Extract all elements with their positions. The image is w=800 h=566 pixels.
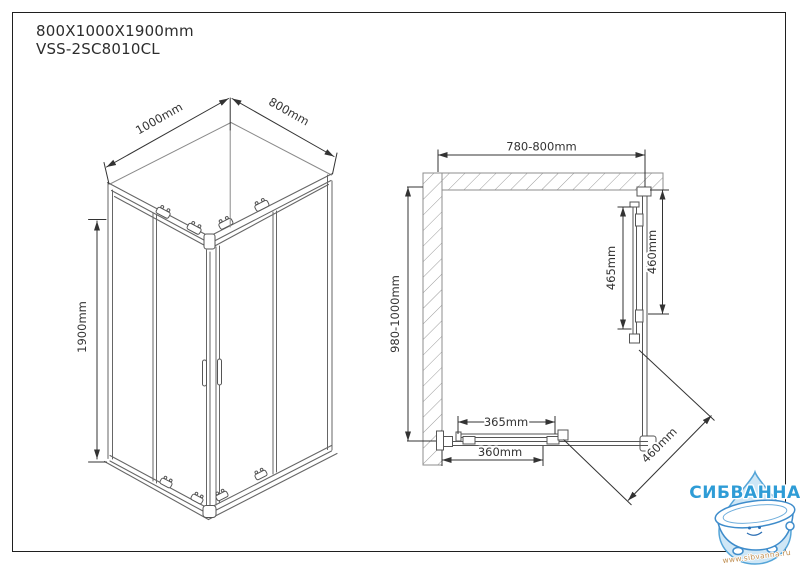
iso-height-dim-label: 1900mm	[75, 301, 89, 353]
watermark-brand-text: СИБВАННА	[689, 483, 800, 503]
side-panel-dim-label: 460mm	[645, 230, 659, 274]
right-wall-bracket	[637, 187, 651, 196]
right-door-roller-bottom	[636, 310, 644, 322]
left-door-handle	[203, 360, 207, 386]
front-door-roller-right	[547, 437, 559, 445]
bottom-wall-bracket	[437, 431, 444, 450]
plan-right-assembly	[630, 187, 657, 451]
isometric-view: 1000mm 800mm 1900mm	[75, 95, 337, 520]
front-door-end-cap	[558, 430, 568, 440]
iso-dimensions	[89, 98, 338, 462]
plan-dimensions	[407, 150, 715, 506]
iso-width-dim-label: 1000mm	[133, 100, 185, 138]
plan-depth-dim-label: 980-1000mm	[388, 275, 402, 353]
iso-bottom-corner-foot	[203, 506, 216, 518]
plan-width-dim-label: 780-800mm	[506, 140, 576, 154]
iso-door-handles	[203, 359, 222, 386]
iso-depth-dim-label: 800mm	[266, 95, 312, 129]
top-wall-hatch	[423, 173, 663, 190]
iso-top-front-rails	[108, 174, 333, 249]
tub-eye-right	[758, 526, 761, 529]
plan-view: 780-800mm 980-1000mm 465mm 460mm 365mm 3…	[388, 140, 715, 506]
side-door-dim-label: 465mm	[604, 246, 618, 290]
front-panel-dim-label: 360mm	[478, 445, 522, 459]
tub-eye-left	[748, 527, 751, 530]
left-wall-hatch	[423, 173, 442, 465]
technical-drawing-page: 800X1000X1900mm VSS-2SC8010CL	[0, 0, 800, 566]
right-door-roller-top	[636, 214, 644, 226]
iso-vertical-profiles	[108, 130, 332, 509]
watermark-logo: СИБВАННА www.sibvanna.ru	[680, 450, 800, 566]
front-door-roller-left	[463, 437, 475, 445]
iso-top-corner-bracket	[204, 234, 215, 249]
right-door-end-cap	[630, 334, 640, 343]
right-door-handle	[218, 359, 222, 385]
plan-bottom-assembly	[437, 430, 649, 450]
plan-walls	[423, 173, 663, 465]
iso-bottom-rails	[105, 446, 338, 520]
front-door-dim-label: 365mm	[484, 415, 528, 429]
tub-hand	[786, 522, 794, 530]
